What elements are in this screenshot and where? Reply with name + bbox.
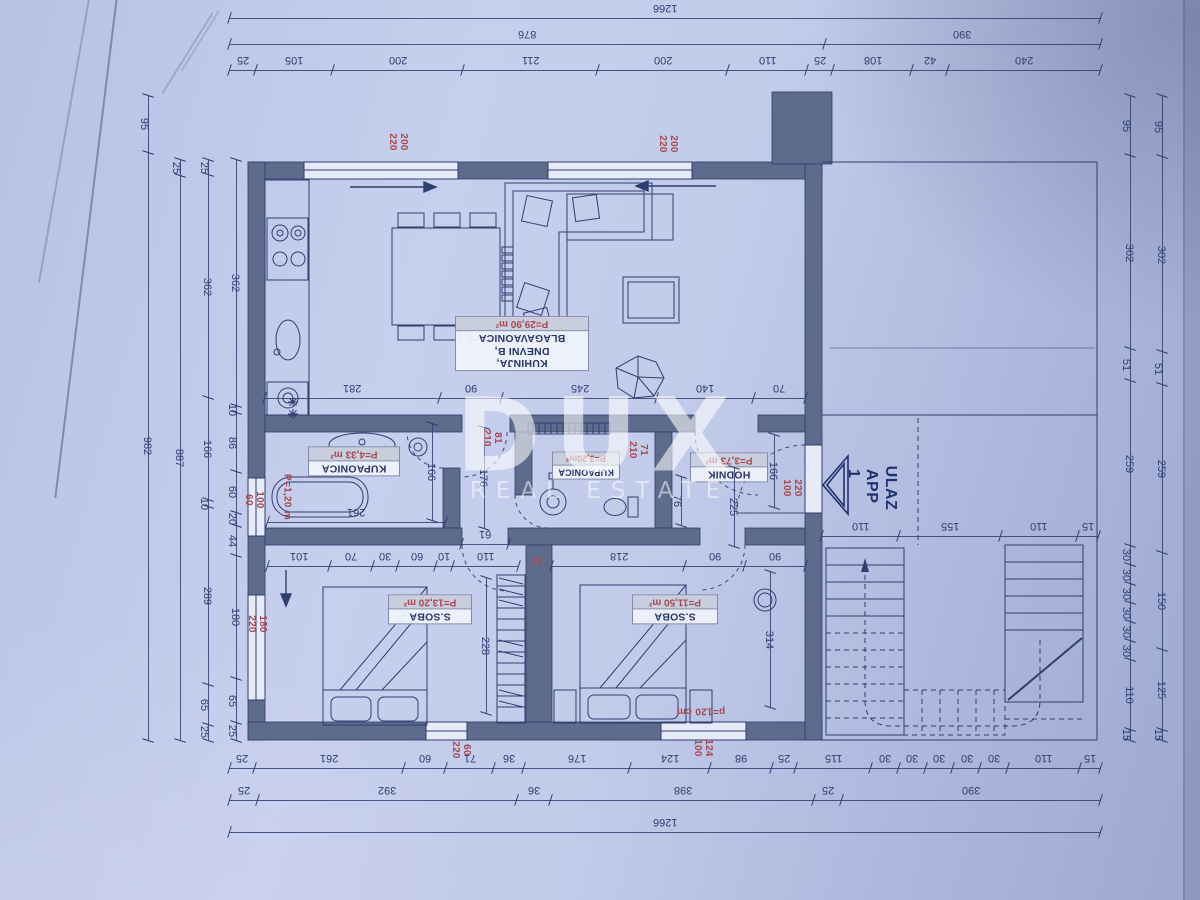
dim-chain-bottom-detail: 252616071361761249825115303030303011015 <box>230 756 1100 774</box>
dim-label: 105 <box>285 54 303 66</box>
dim-label: 200 <box>389 54 407 66</box>
size-label-line: 210 <box>481 429 492 447</box>
room-label-bathroom-small: KUPAONICA P=3,20m² <box>552 452 620 480</box>
room-label-kitchen: KUHINJA, DNEVNI B, BLAGAVAONICA P=29,90 … <box>455 316 589 371</box>
size-label-line: 60 <box>461 741 472 759</box>
dim-segment: 42 <box>912 58 948 76</box>
size-label-window-left-large: 180220 <box>246 615 268 633</box>
dim-segment: 259 <box>1150 385 1168 552</box>
dim-segment: 95 <box>136 96 154 153</box>
dim-label: 15 <box>1084 752 1096 764</box>
dim-segment: 60 <box>398 554 436 572</box>
dim-label: 30 <box>988 752 1000 764</box>
dim-label: 281 <box>343 382 361 394</box>
room-name: KUPAONICA <box>556 467 616 478</box>
size-label-line: 220 <box>387 133 398 151</box>
dim-segment: 302 <box>1150 157 1168 352</box>
dim-label: 101 <box>290 550 308 562</box>
size-label-bed-width: p=120 cm <box>677 705 725 716</box>
dim-label: 95 <box>1152 121 1164 133</box>
dim-chain-bath-main-width: 261 <box>268 510 445 528</box>
dim-segment: 98 <box>710 756 771 774</box>
dim-segment: 281 <box>265 386 440 404</box>
dim-label: 392 <box>378 784 396 796</box>
size-label-window-top-left: 200220 <box>387 133 409 151</box>
dim-label: 259 <box>1123 454 1135 472</box>
dim-chain-bottom-total: 1266 <box>230 820 1100 838</box>
dim-segment: 90 <box>745 554 805 572</box>
dim-label: 302 <box>1123 243 1135 261</box>
dim-segment: 110 <box>453 554 518 572</box>
dim-label: 30 <box>879 752 891 764</box>
dim-chain-bath-main-height: 166 <box>420 424 438 520</box>
dim-label: 25 <box>238 784 250 796</box>
size-label-door-bath-small: 71210 <box>627 441 649 459</box>
dim-segment: 110 <box>1118 660 1136 730</box>
dim-segment: 51 <box>1118 349 1136 381</box>
dim-segment: 30 <box>899 756 926 774</box>
chair-icon <box>470 213 496 227</box>
pillow-icon <box>572 194 599 221</box>
size-label-line: 220 <box>792 479 803 497</box>
size-label-window-bottom-right: 124100 <box>692 739 714 757</box>
dim-segment: 125 <box>1150 650 1168 731</box>
dim-chain-bedroom-right-height: 314 <box>758 572 776 707</box>
dim-label: 289 <box>201 586 213 604</box>
dim-label: 15 <box>1120 729 1132 741</box>
dim-label: 61 <box>479 528 491 540</box>
dim-chain-stairs-bottom: 11015511015 <box>822 524 1098 542</box>
dim-chain-hall-inner: 225 <box>722 468 740 546</box>
dim-label: 25 <box>236 752 248 764</box>
dim-label: 70 <box>345 550 357 562</box>
dim-label: 200 <box>654 54 672 66</box>
dim-label: 15 <box>1152 729 1164 741</box>
size-label-line: 81 <box>492 429 503 447</box>
dim-label: 60 <box>419 752 431 764</box>
pillow-icon <box>522 196 553 227</box>
dim-label: 25 <box>814 54 826 66</box>
chair-icon <box>398 213 424 227</box>
dim-label: 110 <box>1123 687 1135 705</box>
dim-label: 95 <box>1120 120 1132 132</box>
dim-label: 876 <box>518 28 536 40</box>
size-label-line: p=120 cm <box>677 705 725 716</box>
dim-chain-bedroom-left-height: 228 <box>474 578 492 713</box>
coffee-table-icon <box>623 277 679 323</box>
dim-label: 30 <box>379 550 391 562</box>
dim-label: 25 <box>237 54 249 66</box>
dim-segment: 25 <box>814 788 842 806</box>
room-label-bathroom-main: KUPAONICA P=4,33 m² <box>308 446 400 476</box>
dim-label: 44 <box>226 535 238 547</box>
dim-segment: 90 <box>685 554 745 572</box>
dim-segment: 289 <box>196 507 214 685</box>
dim-label: 76 <box>671 495 683 507</box>
dim-label: 110 <box>852 520 870 532</box>
dim-label: 25 <box>198 726 210 738</box>
size-label-line: 210 <box>627 441 638 459</box>
dim-segment: 61 <box>462 532 508 550</box>
dim-segment: 876 <box>230 32 825 50</box>
dim-label: 90 <box>465 382 477 394</box>
dim-label: 150 <box>1155 592 1167 610</box>
dim-label: 166 <box>425 463 437 481</box>
dim-segment: 30 <box>373 554 398 572</box>
dim-label: 155 <box>941 520 959 532</box>
dim-label: 176 <box>568 752 586 764</box>
dim-chain-hall-small: 76 <box>669 477 687 525</box>
dim-label: 60 <box>411 550 423 562</box>
pillow-icon <box>331 697 371 721</box>
dim-segment: 30 <box>953 756 980 774</box>
dim-label: 398 <box>674 784 692 796</box>
dim-label: 95 <box>138 118 150 130</box>
arrow-right-icon <box>350 182 436 192</box>
size-label-line: 100 <box>692 739 703 757</box>
size-label-window-bottom-left: 60220 <box>450 741 472 759</box>
dim-label: 166 <box>767 462 779 480</box>
dim-segment: 392 <box>258 788 517 806</box>
dim-segment: 240 <box>948 58 1100 76</box>
dim-segment: 65 <box>224 679 242 723</box>
dim-label: 180 <box>229 608 241 626</box>
dim-label: 30 <box>1120 607 1132 619</box>
dim-label: 25 <box>226 725 238 737</box>
dim-chain-left-inner: 25362166102896525 <box>196 160 214 740</box>
dim-segment: 166 <box>420 424 438 520</box>
dim-segment: 180 <box>224 556 242 679</box>
dim-segment: 398 <box>551 788 814 806</box>
dim-segment: 259 <box>1118 381 1136 546</box>
size-label-door-entrance: 220100 <box>781 479 803 497</box>
dim-segment: 95 <box>1150 96 1168 157</box>
stairs-icon <box>826 418 1083 735</box>
dim-segment: 110 <box>822 524 899 542</box>
size-label-line: 220 <box>657 135 668 153</box>
dim-label: 302 <box>1155 246 1167 264</box>
dim-chain-left-wall: 36210866020441806525 <box>224 160 242 740</box>
dim-label: 225 <box>727 498 739 516</box>
dim-segment: 36 <box>494 756 524 774</box>
dim-segment: 70 <box>754 386 805 404</box>
dim-segment: 362 <box>196 175 214 398</box>
dim-segment: 261 <box>255 756 404 774</box>
size-label-line: 200 <box>398 133 409 151</box>
dim-label: 982 <box>141 437 153 455</box>
dim-segment: 200 <box>598 58 728 76</box>
dim-chain-top-mid: 876390 <box>230 32 1100 50</box>
dim-chain-top-detail: 251052002112001102510842240 <box>230 58 1100 76</box>
dim-label: 30 <box>1120 588 1132 600</box>
dim-label: 362 <box>201 278 213 296</box>
dim-segment: 124 <box>630 756 710 774</box>
stairs-zone <box>822 162 1097 740</box>
entrance-label: ULAZ APP 1 <box>835 469 907 507</box>
dim-segment: 60 <box>404 756 446 774</box>
dim-label: 90 <box>769 550 781 562</box>
room-name: S.SOBA <box>392 610 468 622</box>
dim-label: 1266 <box>653 2 677 14</box>
dim-label: 245 <box>571 382 589 394</box>
dim-label: 36 <box>528 784 540 796</box>
dim-segment: 115 <box>796 756 871 774</box>
dim-segment: 86 <box>224 413 242 472</box>
dim-segment: 25 <box>230 756 255 774</box>
dim-segment: 110 <box>1008 756 1081 774</box>
dim-label: 70 <box>773 382 785 394</box>
nightstand-icon <box>554 690 576 723</box>
dim-segment: 218 <box>552 554 685 572</box>
dim-label: 30 <box>1120 626 1132 638</box>
dim-label: 65 <box>226 695 238 707</box>
dim-segment: 166 <box>196 398 214 500</box>
size-label-line: 200 <box>668 135 679 153</box>
dim-label: 110 <box>1030 520 1048 532</box>
dim-segment: 60 <box>224 472 242 513</box>
room-area: P=4,33 m² <box>309 447 399 461</box>
dim-label: 115 <box>825 752 843 764</box>
dim-segment: 314 <box>758 572 776 707</box>
dim-chain-mid-room: 2819024514070 <box>265 386 805 404</box>
dim-label: 15 <box>1082 520 1094 532</box>
room-area: P=29,90 m² <box>456 317 588 331</box>
dim-chain-top-total: 1266 <box>230 6 1100 24</box>
dim-label: 25 <box>170 162 182 174</box>
dim-segment: 228 <box>474 578 492 713</box>
kitchen-counter-icon <box>265 180 309 415</box>
size-label-line: 100 <box>781 479 792 497</box>
dim-label: 124 <box>661 752 679 764</box>
dim-segment: 25 <box>230 788 258 806</box>
dim-segment: 25 <box>224 723 242 740</box>
dim-segment: 140 <box>657 386 753 404</box>
dim-label: 30 <box>933 752 945 764</box>
dim-segment: 101 <box>268 554 330 572</box>
size-label-wall-gap: 47 <box>531 554 543 565</box>
dim-label: 261 <box>347 506 365 518</box>
dim-label: 176 <box>477 469 489 487</box>
room-label-bedroom-right: S.SOBA P=11,50 m² <box>632 594 718 624</box>
dim-segment: 90 <box>440 386 502 404</box>
dim-chain-right-outer: 953025125915012515 <box>1150 96 1168 740</box>
dim-label: 390 <box>962 784 980 796</box>
dim-label: 30 <box>1120 568 1132 580</box>
dim-label: 110 <box>477 550 495 562</box>
dim-segment: 76 <box>669 477 687 525</box>
dim-segment: 95 <box>1118 96 1136 156</box>
size-label-line: 180 <box>257 615 268 633</box>
dim-chain-hall-height: 166 <box>762 435 780 507</box>
dim-label: 30 <box>1120 645 1132 657</box>
dim-label: 90 <box>709 550 721 562</box>
radiator-icon <box>502 247 513 301</box>
size-label-bathtub-length: P=1,20 m <box>281 474 292 520</box>
dim-label: 25 <box>822 784 834 796</box>
dim-segment: 25 <box>196 725 214 740</box>
dim-label: 218 <box>610 550 628 562</box>
dim-label: 240 <box>1015 54 1033 66</box>
dim-segment: 302 <box>1118 156 1136 348</box>
size-label-line: 71 <box>638 441 649 459</box>
dim-segment: 44 <box>224 526 242 556</box>
dim-label: 110 <box>1035 752 1053 764</box>
dim-segment: 36 <box>517 788 551 806</box>
dim-segment: 261 <box>268 510 445 528</box>
dim-segment: 390 <box>825 32 1100 50</box>
room-area: P=3,20m² <box>553 453 619 466</box>
washbasin-icon <box>540 489 566 515</box>
dim-label: 98 <box>735 752 747 764</box>
dim-chain-bedroom-left-top: 10170306010110 <box>268 554 518 572</box>
dim-segment: 108 <box>833 58 912 76</box>
room-name: KUHINJA, DNEVNI B, BLAGAVAONICA <box>456 331 588 370</box>
dim-segment: 1266 <box>230 6 1100 24</box>
room-name: KUPAONICA <box>312 462 396 474</box>
dim-label: 65 <box>198 698 210 710</box>
dim-segment: 25 <box>807 58 833 76</box>
dim-label: 314 <box>763 630 775 648</box>
rug-icon <box>567 194 673 240</box>
dim-segment: 166 <box>762 435 780 507</box>
size-label-line: 47 <box>531 554 543 565</box>
dim-segment: 15 <box>1078 524 1098 542</box>
arrow-down-icon <box>281 570 291 606</box>
dim-label: 30 <box>906 752 918 764</box>
dim-segment: 390 <box>842 788 1100 806</box>
size-label-line: 124 <box>703 739 714 757</box>
dim-label: 42 <box>924 54 936 66</box>
dim-label: 362 <box>229 274 241 292</box>
dim-segment: 110 <box>1001 524 1078 542</box>
dim-chain-right-inner: 953025125930303030303011015 <box>1118 96 1136 740</box>
dim-label: 1266 <box>653 816 677 828</box>
dim-segment: 15 <box>1080 756 1100 774</box>
size-label-door-corridor: 81210 <box>481 429 503 447</box>
dim-segment: 70 <box>330 554 373 572</box>
dim-segment: 65 <box>196 685 214 725</box>
dim-segment: 245 <box>502 386 657 404</box>
size-label-line: 60 <box>243 491 254 509</box>
size-label-window-left-small: 10060 <box>243 491 265 509</box>
dim-chain-left-mid: 25887 <box>168 160 186 740</box>
dim-segment: 155 <box>899 524 1001 542</box>
dim-chain-left-outer: 95982 <box>136 96 154 740</box>
dim-segment: 30 <box>926 756 953 774</box>
size-label-line: 100 <box>254 491 265 509</box>
dim-segment: 15 <box>1150 730 1168 740</box>
dim-label: 30 <box>961 752 973 764</box>
dim-segment: 30 <box>980 756 1007 774</box>
toilet-icon <box>628 497 638 517</box>
dim-segment: 30 <box>871 756 898 774</box>
room-label-bedroom-left: S.SOBA P=13,20 m² <box>388 594 472 624</box>
dim-label: 166 <box>201 440 213 458</box>
size-label-window-top-right: 200220 <box>657 135 679 153</box>
dim-segment: 176 <box>524 756 630 774</box>
dim-label: 30 <box>1120 549 1132 561</box>
dim-segment: 51 <box>1150 352 1168 385</box>
dim-label: 36 <box>503 752 515 764</box>
size-label-line: 220 <box>246 615 257 633</box>
dim-segment: 25 <box>230 58 256 76</box>
dim-label: 51 <box>1120 359 1132 371</box>
dim-segment: 150 <box>1150 553 1168 650</box>
walls <box>248 92 832 740</box>
dim-segment: 887 <box>168 176 186 740</box>
chair-icon <box>398 326 424 340</box>
dim-segment: 225 <box>722 468 740 546</box>
size-label-line: P=1,20 m <box>281 474 292 520</box>
dim-label: 10 <box>438 550 450 562</box>
dim-label: 25 <box>778 752 790 764</box>
dim-segment: 110 <box>728 58 807 76</box>
dim-segment: 362 <box>224 160 242 406</box>
dim-label: 110 <box>759 54 777 66</box>
pillow-icon <box>588 695 630 719</box>
pillow-icon <box>636 695 678 719</box>
dim-label: 228 <box>479 636 491 654</box>
pillow-icon <box>378 697 418 721</box>
room-name: S.SOBA <box>636 610 714 622</box>
room-area: P=11,50 m² <box>633 595 717 609</box>
dim-label: 60 <box>226 486 238 498</box>
dim-label: 259 <box>1155 460 1167 478</box>
dim-label: 211 <box>522 54 540 66</box>
wardrobe-icon <box>497 575 525 723</box>
arrow-left-icon <box>636 181 716 191</box>
dim-label: 51 <box>1152 363 1164 375</box>
dim-chain-corridor-width: 61 <box>462 532 508 550</box>
blueprint-photo: KUHINJA, DNEVNI B, BLAGAVAONICA P=29,90 … <box>0 0 1200 900</box>
dim-segment: 15 <box>1118 730 1136 740</box>
dim-segment: 982 <box>136 153 154 740</box>
dim-label: 86 <box>226 436 238 448</box>
room-area: P=13,20 m² <box>389 595 471 609</box>
size-label-line: 220 <box>450 741 461 759</box>
dim-segment: 105 <box>256 58 333 76</box>
dim-label: 140 <box>696 382 714 394</box>
chair-icon <box>434 213 460 227</box>
dim-segment: 211 <box>463 58 598 76</box>
dim-label: 261 <box>320 752 338 764</box>
dim-label: 887 <box>173 449 185 467</box>
floor-plan: KUHINJA, DNEVNI B, BLAGAVAONICA P=29,90 … <box>0 0 1200 900</box>
dim-segment: 200 <box>333 58 463 76</box>
dim-chain-bottom-mid: 253923639825390 <box>230 788 1100 806</box>
dim-label: 390 <box>953 28 971 40</box>
dim-label: 125 <box>1155 681 1167 699</box>
dim-label: 108 <box>864 54 882 66</box>
dim-segment: 1266 <box>230 820 1100 838</box>
